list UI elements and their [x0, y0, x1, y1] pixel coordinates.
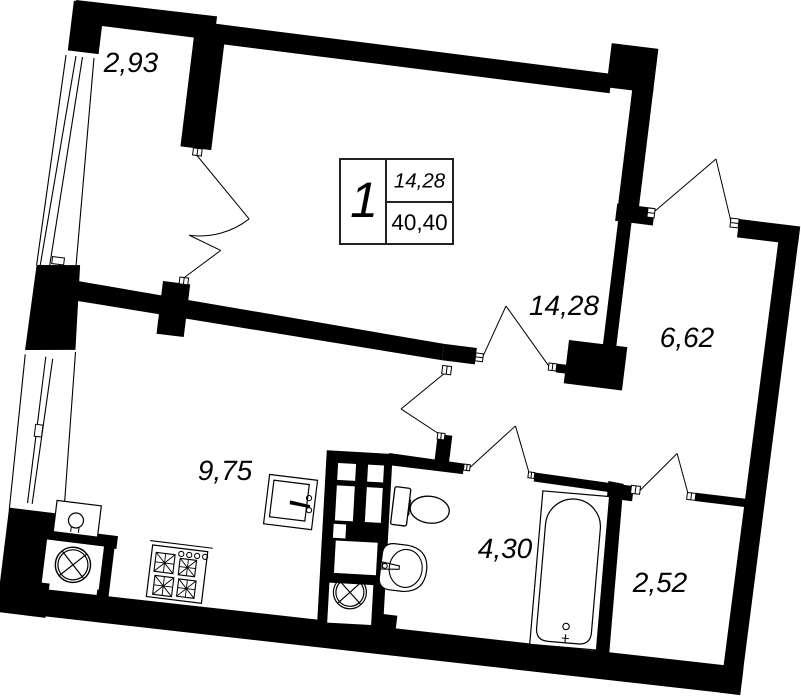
svg-text:4,30: 4,30: [478, 533, 533, 564]
svg-text:1: 1: [350, 172, 378, 228]
svg-text:14,28: 14,28: [529, 290, 599, 321]
svg-text:6,62: 6,62: [660, 322, 715, 353]
svg-text:2,52: 2,52: [632, 567, 688, 598]
svg-text:14,28: 14,28: [394, 170, 446, 193]
svg-text:9,75: 9,75: [198, 455, 253, 486]
svg-text:2,93: 2,93: [103, 47, 159, 78]
svg-text:40,40: 40,40: [391, 210, 447, 235]
